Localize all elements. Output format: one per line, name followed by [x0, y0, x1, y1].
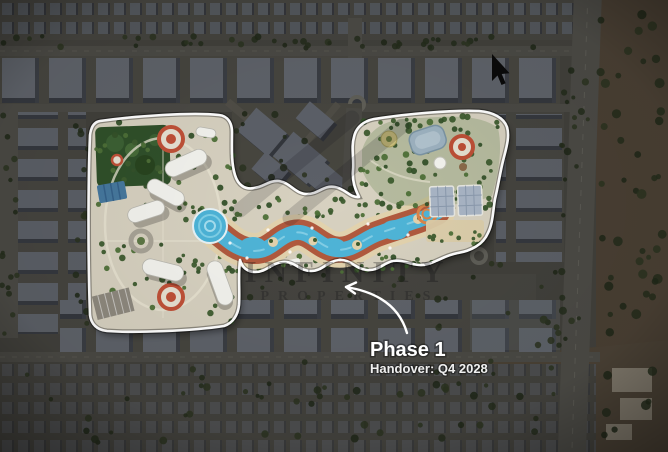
- aerial-map: INFINITY PROPERTIES Phase 1 Handover: Q4…: [0, 0, 668, 452]
- masterplan-screenshot: INFINITY PROPERTIES Phase 1 Handover: Q4…: [0, 0, 668, 452]
- phase-label: Phase 1: [370, 339, 446, 361]
- handover-label: Handover: Q4 2028: [370, 361, 488, 376]
- vignette: [0, 0, 668, 452]
